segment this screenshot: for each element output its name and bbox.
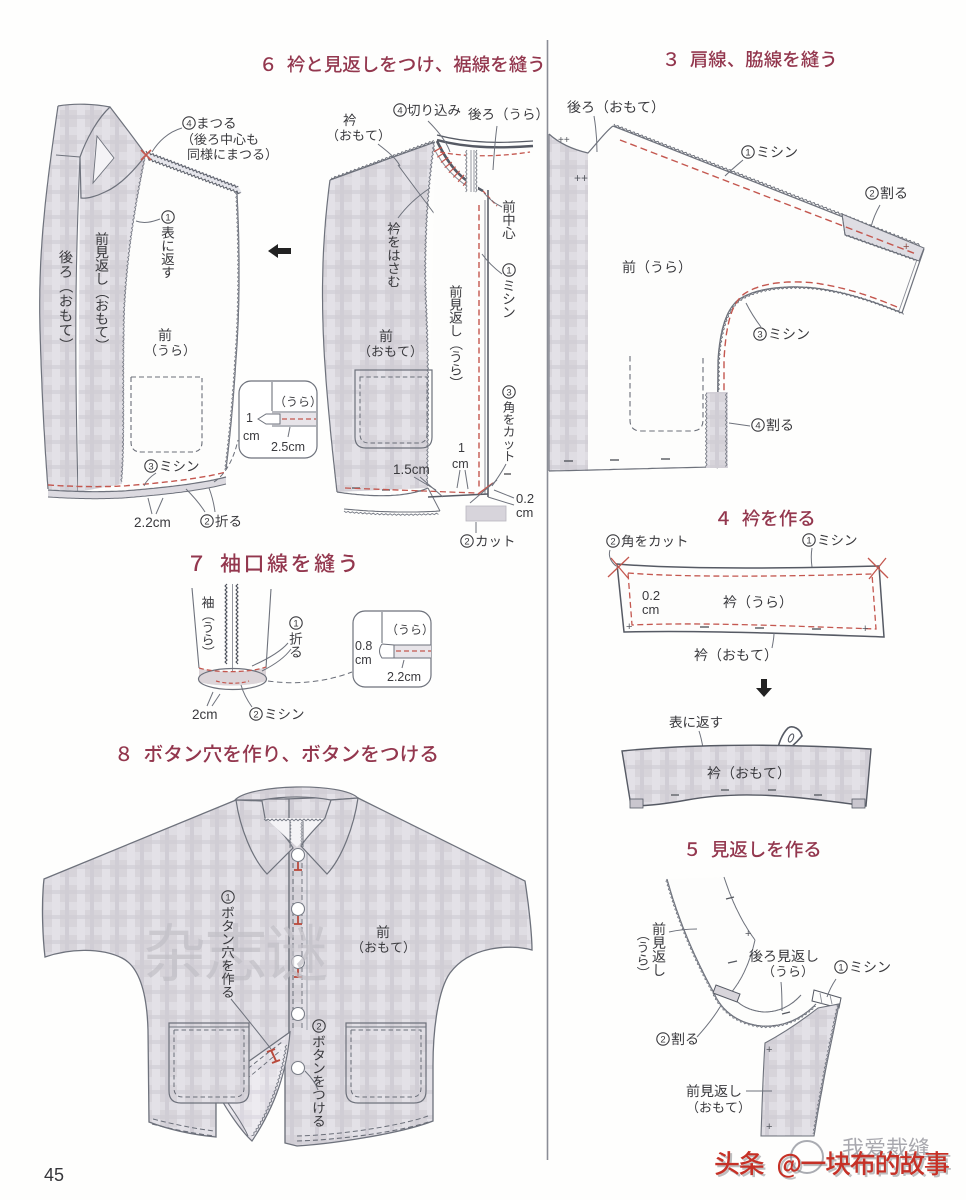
svg-text:cm: cm — [452, 457, 469, 471]
svg-text:+: + — [903, 241, 909, 253]
svg-text:1: 1 — [293, 618, 298, 629]
svg-text:1: 1 — [506, 265, 511, 276]
svg-text:+: + — [766, 1121, 772, 1133]
svg-text:+: + — [766, 1044, 772, 1056]
svg-text:2.2cm: 2.2cm — [387, 670, 421, 684]
svg-text:1: 1 — [165, 212, 170, 223]
svg-text:0.2: 0.2 — [642, 588, 660, 603]
svg-text:45: 45 — [44, 1165, 64, 1185]
svg-text:3: 3 — [506, 387, 511, 398]
svg-text:1: 1 — [838, 962, 843, 973]
svg-text:1: 1 — [806, 535, 811, 546]
svg-text:2: 2 — [660, 1034, 665, 1045]
svg-text:1: 1 — [458, 441, 465, 455]
svg-text:1: 1 — [225, 892, 230, 903]
svg-text:3: 3 — [148, 461, 153, 472]
svg-text:+: + — [626, 621, 632, 633]
svg-text:2: 2 — [316, 1021, 321, 1032]
svg-text:+: + — [745, 928, 751, 940]
svg-text:1: 1 — [246, 411, 253, 425]
svg-text:2: 2 — [253, 709, 258, 720]
svg-text:cm: cm — [355, 653, 372, 667]
svg-text:++: ++ — [558, 135, 570, 146]
svg-text:2: 2 — [204, 516, 209, 527]
svg-text:2: 2 — [464, 536, 469, 547]
svg-text:++: ++ — [574, 171, 588, 185]
svg-text:2.2cm: 2.2cm — [134, 515, 171, 530]
svg-text:2cm: 2cm — [192, 707, 218, 722]
svg-text:cm: cm — [642, 602, 659, 617]
svg-text:2.5cm: 2.5cm — [271, 440, 305, 454]
svg-text:0.2: 0.2 — [516, 491, 534, 506]
svg-text:4: 4 — [397, 105, 402, 116]
svg-text:0.8: 0.8 — [355, 639, 372, 653]
svg-text:1: 1 — [745, 147, 750, 158]
svg-text:3: 3 — [757, 329, 762, 340]
svg-text:+: + — [862, 623, 868, 635]
svg-text:cm: cm — [243, 429, 260, 443]
svg-text:4: 4 — [755, 420, 760, 431]
svg-text:1.5cm: 1.5cm — [393, 462, 430, 477]
svg-text:2: 2 — [610, 536, 615, 547]
svg-text:2: 2 — [869, 188, 874, 199]
svg-text:4: 4 — [186, 118, 191, 129]
svg-text:cm: cm — [516, 505, 533, 520]
